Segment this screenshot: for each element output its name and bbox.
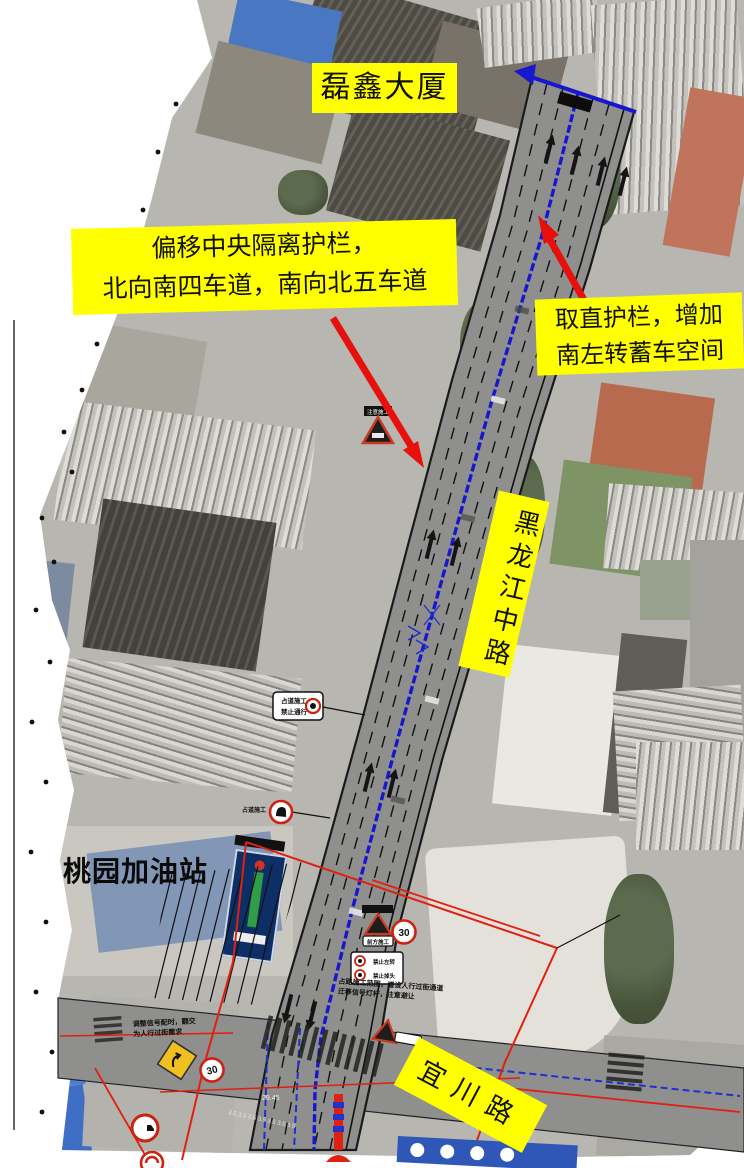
prohibition-sign-road: 占道施工 (242, 801, 292, 823)
speed-limit-30-text: 30 (398, 928, 410, 939)
no-turn-line1: 禁止左转 (373, 958, 396, 966)
billboard (397, 1136, 578, 1168)
no-stopping-sign: 占道施工 禁止通行 (273, 692, 323, 720)
traffic-plan-map: 注意施工 占道施工 禁止通行 占道施工 前方施工 30 (0, 0, 744, 1168)
median-note-label: 偏移中央隔离护栏， 北向南四车道，南向北五车道 (71, 219, 458, 315)
red-circle-sign (141, 1152, 163, 1168)
warning-plate-bottom-text: 前方施工 (367, 938, 390, 946)
no-turn-line2: 禁止掉头 (373, 972, 396, 980)
building-label: 磊鑫大厦 (312, 63, 457, 113)
guardrail-note-label: 取直护栏，增加 南左转蓄车空间 (535, 292, 744, 375)
roadside-note-text: 占道施工 (242, 806, 266, 814)
speed-limit-sign-30: 30 (393, 921, 416, 944)
total-width-text: 29.45 (262, 1095, 280, 1102)
no-stop-line2: 禁止通行 (281, 707, 308, 716)
no-trucks-sign (132, 1115, 158, 1141)
no-stop-line1: 占道施工 (281, 696, 308, 705)
red-arrow-median (333, 318, 424, 468)
gas-station-label: 桃园加油站 (63, 850, 208, 890)
guardrail-note-line2: 南左转蓄车空间 (536, 332, 744, 375)
